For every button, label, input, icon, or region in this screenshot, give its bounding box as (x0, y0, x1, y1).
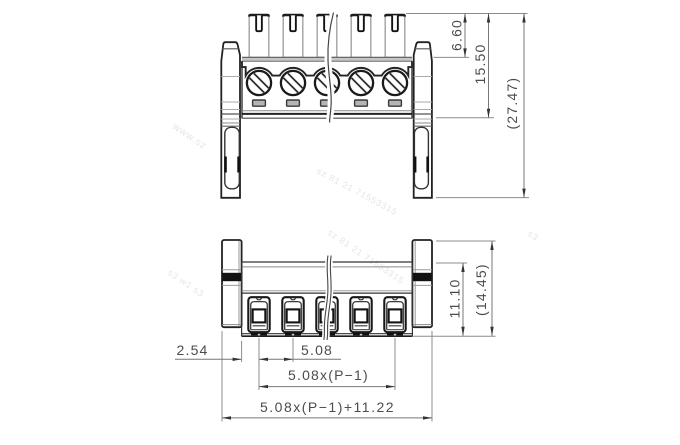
svg-text:11.10: 11.10 (447, 279, 463, 319)
svg-text:5.08x(P−1): 5.08x(P−1) (288, 367, 369, 383)
svg-text:(14.45): (14.45) (473, 263, 489, 316)
svg-text:5.08x(P−1)+11.22: 5.08x(P−1)+11.22 (260, 399, 395, 415)
svg-text:5.08: 5.08 (301, 342, 333, 358)
svg-text:2.54: 2.54 (177, 342, 209, 358)
svg-text:15.50: 15.50 (472, 43, 488, 84)
svg-text:(27.47): (27.47) (504, 77, 520, 130)
svg-text:6.60: 6.60 (449, 19, 465, 51)
